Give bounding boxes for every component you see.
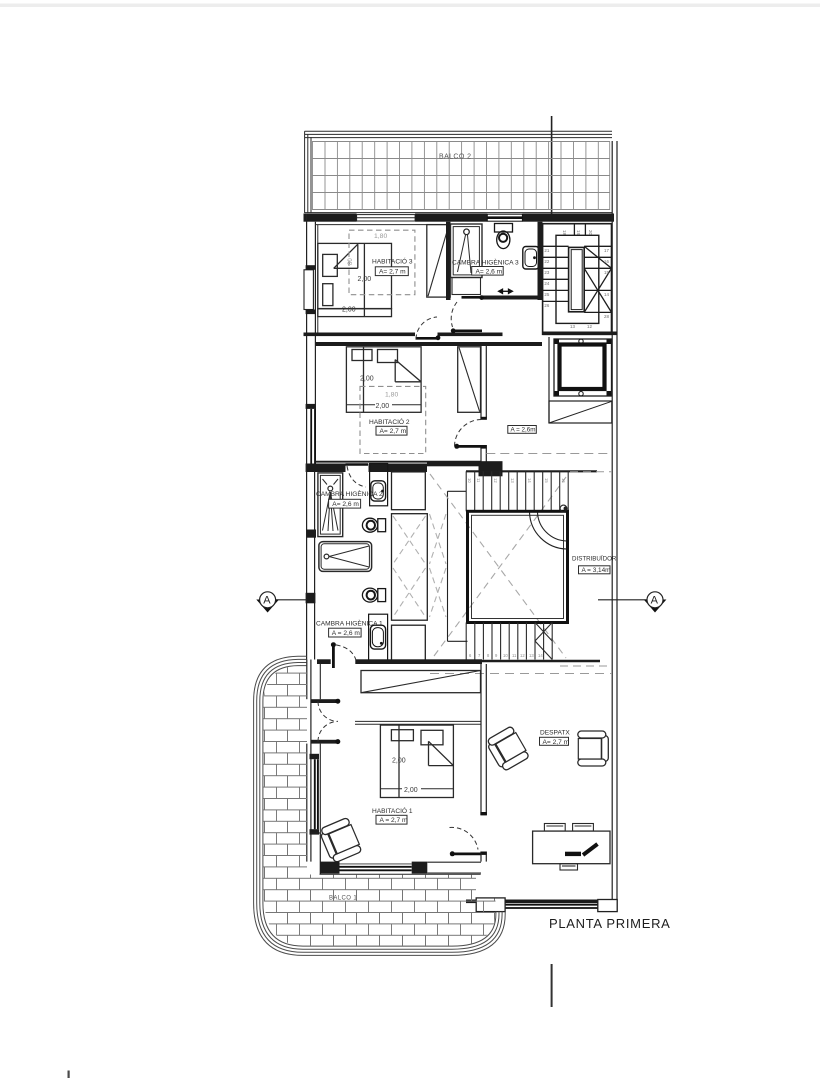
svg-text:18: 18 <box>562 230 567 235</box>
svg-text:DISTRIBUÏDOR: DISTRIBUÏDOR <box>572 556 617 563</box>
svg-text:11: 11 <box>512 653 517 658</box>
svg-text:13: 13 <box>510 478 515 483</box>
svg-text:25: 25 <box>544 292 549 297</box>
svg-text:15: 15 <box>544 478 549 483</box>
svg-text:28: 28 <box>604 314 609 319</box>
svg-text:A= 2,7 m: A= 2,7 m <box>380 428 407 435</box>
svg-text:2,00: 2,00 <box>392 758 406 765</box>
svg-text:22: 22 <box>544 259 549 264</box>
svg-text:BALCO 1: BALCO 1 <box>329 896 357 902</box>
svg-text:14: 14 <box>538 653 543 658</box>
svg-text:A= 2,6 m: A= 2,6 m <box>332 501 359 508</box>
svg-text:16: 16 <box>561 478 566 483</box>
svg-text:A: A <box>263 595 271 607</box>
svg-text:HABITACIÓ 1: HABITACIÓ 1 <box>372 806 413 815</box>
svg-text:CAMBRA HIGÈNICA 1: CAMBRA HIGÈNICA 1 <box>316 619 383 628</box>
svg-text:21: 21 <box>544 248 549 253</box>
svg-text:HABITACIÓ 3: HABITACIÓ 3 <box>372 257 413 266</box>
svg-text:1,80: 1,80 <box>385 392 398 399</box>
svg-text:24: 24 <box>544 281 549 286</box>
svg-text:A= 2,7 m: A= 2,7 m <box>379 269 406 276</box>
svg-text:A= 2,6 m: A= 2,6 m <box>476 268 503 275</box>
svg-text:17: 17 <box>604 248 609 253</box>
svg-text:80: 80 <box>348 258 354 265</box>
svg-text:2,00: 2,00 <box>360 376 374 383</box>
svg-text:14: 14 <box>527 478 532 483</box>
svg-text:12: 12 <box>520 653 525 658</box>
svg-text:A = 2,7 m: A = 2,7 m <box>380 817 409 824</box>
svg-text:20: 20 <box>588 230 593 235</box>
svg-text:A = 3,14m: A = 3,14m <box>582 567 611 574</box>
svg-text:11: 11 <box>476 478 481 483</box>
svg-text:A= 2,7 m: A= 2,7 m <box>543 739 570 746</box>
svg-text:12: 12 <box>493 478 498 483</box>
svg-text:2,00: 2,00 <box>404 787 418 794</box>
svg-text:BALCO 2: BALCO 2 <box>439 154 471 161</box>
svg-text:12: 12 <box>587 324 592 329</box>
svg-text:DESPATX: DESPATX <box>540 730 570 737</box>
svg-text:10: 10 <box>503 653 508 658</box>
svg-text:16: 16 <box>604 259 609 264</box>
svg-text:1,80: 1,80 <box>374 233 387 240</box>
svg-text:14: 14 <box>604 292 609 297</box>
svg-text:PLANTA PRIMERA: PLANTA PRIMERA <box>549 916 671 931</box>
svg-text:13: 13 <box>570 324 575 329</box>
svg-text:2,00: 2,00 <box>376 403 390 410</box>
svg-text:23: 23 <box>544 270 549 275</box>
svg-text:15: 15 <box>604 270 609 275</box>
svg-text:10: 10 <box>467 478 472 483</box>
svg-text:A = 2,6 m: A = 2,6 m <box>332 630 361 637</box>
svg-text:A = 2,6m: A = 2,6m <box>511 427 536 434</box>
svg-text:26: 26 <box>544 303 549 308</box>
svg-text:2,00: 2,00 <box>358 276 372 283</box>
svg-text:2,00: 2,00 <box>342 307 356 314</box>
svg-text:13: 13 <box>529 653 534 658</box>
svg-text:19: 19 <box>576 230 581 235</box>
svg-text:CAMBRA HIGÈNICA 3: CAMBRA HIGÈNICA 3 <box>452 258 519 267</box>
svg-text:A: A <box>651 595 659 607</box>
svg-text:HABITACIÓ 2: HABITACIÓ 2 <box>369 417 410 426</box>
